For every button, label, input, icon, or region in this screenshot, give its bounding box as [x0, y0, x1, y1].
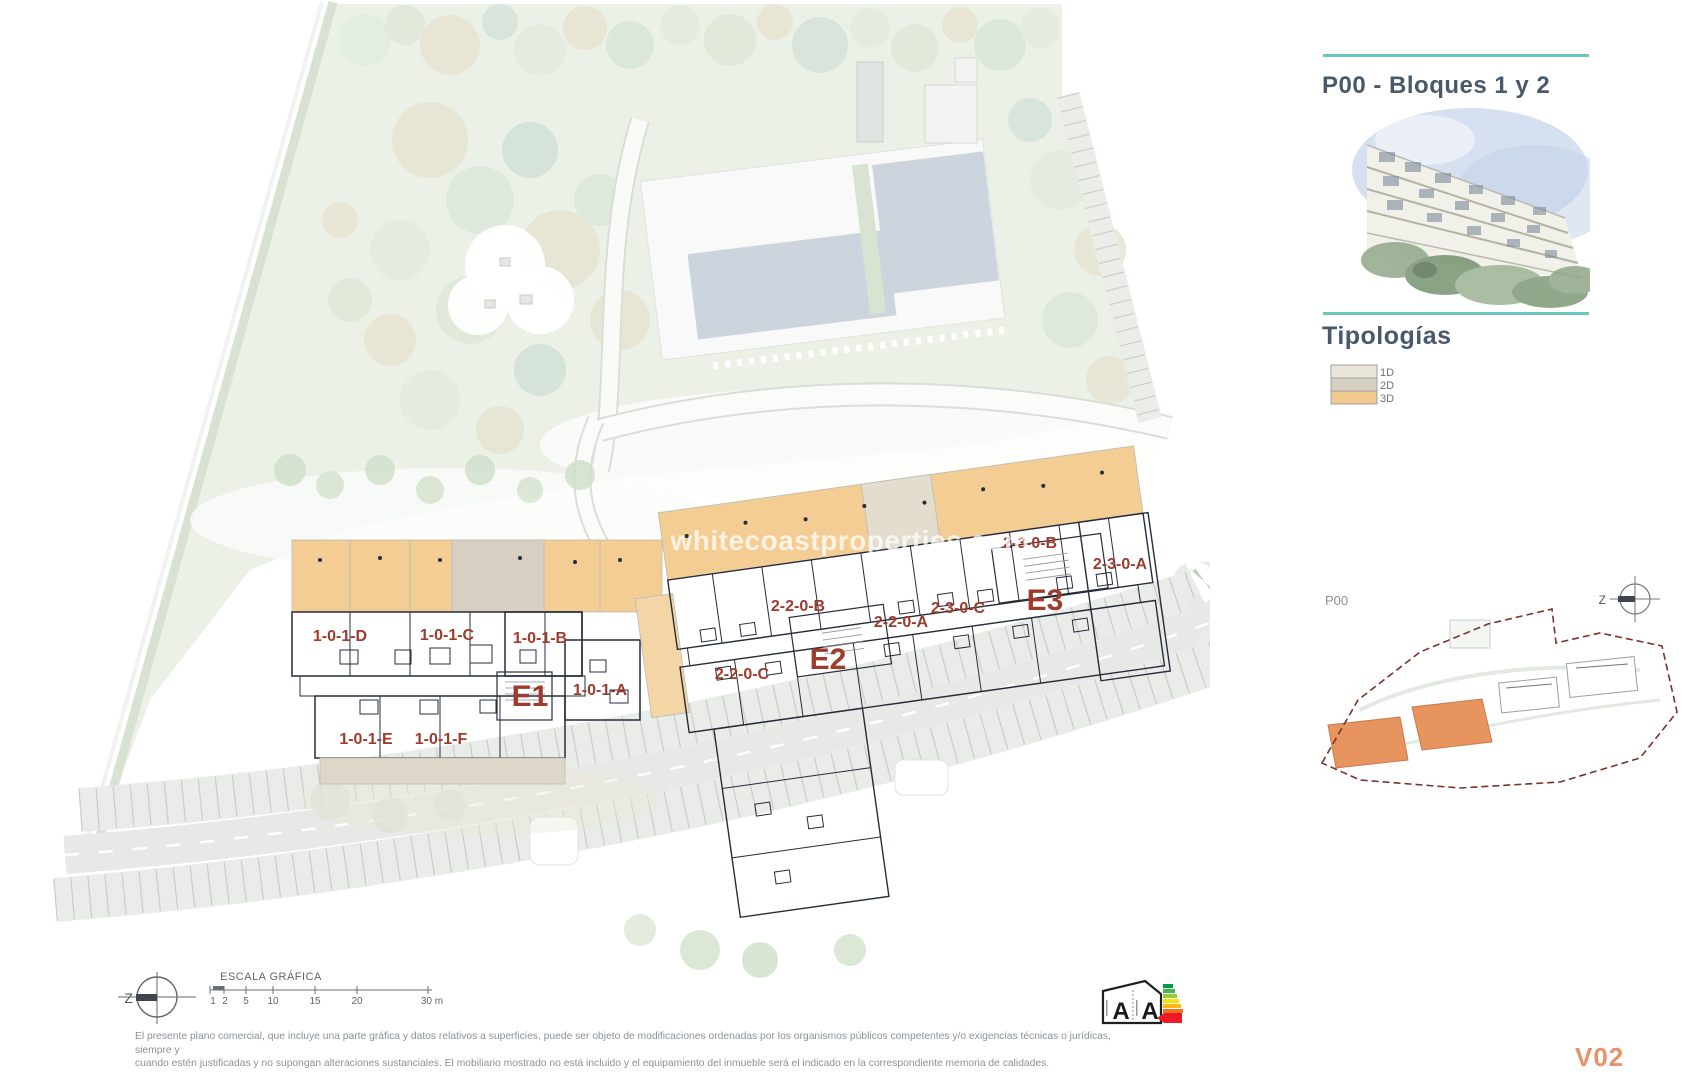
unit-label-101d: 1-0-1-D: [313, 628, 367, 645]
scale-bar-title: ESCALA GRÁFICA: [220, 970, 322, 983]
block-label-e2: E2: [810, 643, 847, 676]
energy-certificate-icon: A A: [1103, 981, 1183, 1025]
legend-label-1d: 1D: [1380, 367, 1394, 379]
disclaimer-line-1: El presente plano comercial, que incluye…: [135, 1030, 1145, 1057]
page-title: P00 - Bloques 1 y 2: [1322, 72, 1550, 100]
typologies-legend: 1D 2D 3D: [1330, 364, 1440, 410]
legend-swatch-3d: [1331, 391, 1377, 404]
disclaimer-line-2: cuando estén justificadas y no supongan …: [135, 1057, 1145, 1071]
accent-rule-middle: [1323, 312, 1589, 315]
watermark: whitecoastproperties.com: [670, 525, 1030, 556]
legend-swatch-1d: [1331, 365, 1377, 378]
unit-label-230c: 2-3-0-C: [931, 600, 986, 617]
minimap-compass-letter: Z: [1599, 593, 1606, 607]
unit-label-230a: 2-3-0-A: [1093, 556, 1148, 573]
scale-tick-20: 20: [351, 996, 363, 1007]
location-minimap: P00 Z: [1300, 560, 1700, 800]
compass-needle: [136, 994, 157, 1001]
accent-rule-top: [1323, 54, 1589, 57]
parking-and-road: [55, 583, 1210, 900]
legend-swatch-2d: [1331, 378, 1377, 391]
unit-label-101c: 1-0-1-C: [420, 627, 475, 644]
minimap-label: P00: [1325, 593, 1348, 608]
unit-label-101b: 1-0-1-B: [513, 630, 567, 647]
unit-label-101e: 1-0-1-E: [339, 731, 393, 748]
disclaimer: El presente plano comercial, que incluye…: [135, 1030, 1145, 1071]
energy-micro-text-left: [1106, 1000, 1108, 1016]
scale-tick-30m: 30 m: [421, 996, 443, 1007]
block-label-e3: E3: [1027, 584, 1064, 617]
unit-label-220b: 2-2-0-B: [771, 598, 825, 615]
scale-tick-1: 1: [210, 996, 216, 1007]
block-label-e1: E1: [512, 680, 549, 713]
unit-label-101f: 1-0-1-F: [415, 731, 468, 748]
pool-second: [872, 151, 999, 294]
legend-label-2d: 2D: [1380, 380, 1394, 392]
minimap-compass: Z: [1599, 576, 1660, 622]
scale-tick-2: 2: [222, 996, 228, 1007]
unit-label-101a: 1-0-1-A: [573, 682, 628, 699]
energy-micro-text-right: [1136, 1000, 1138, 1016]
scale-tick-10: 10: [267, 996, 279, 1007]
unit-label-220c: 2-2-0-C: [715, 666, 770, 683]
legend-label-3d: 3D: [1380, 393, 1394, 405]
commercial-site-plan-page: { "header": { "title": "P00 - Bloques 1 …: [0, 0, 1700, 1080]
scale-tick-5: 5: [243, 996, 249, 1007]
scale-tick-15: 15: [309, 996, 321, 1007]
typologies-title: Tipologías: [1322, 322, 1452, 351]
unit-label-220a: 2-2-0-A: [874, 614, 929, 631]
minimap-site: [1322, 609, 1677, 788]
energy-letter-left: A: [1112, 998, 1129, 1025]
unit-a-footprint: [565, 640, 640, 720]
scale-bar: ESCALA GRÁFICA 1 2 5 10 15 20 30 m: [210, 970, 443, 1007]
site-plan: 1-0-1-D 1-0-1-C 1-0-1-B 1-0-1-A 1-0-1-E …: [0, 0, 1210, 1080]
building-render: [1335, 100, 1590, 315]
plan-compass: Z: [118, 972, 196, 1024]
energy-letter-right: A: [1141, 998, 1158, 1025]
version-badge: V02: [1575, 1042, 1624, 1073]
compass-letter: Z: [124, 990, 133, 1006]
